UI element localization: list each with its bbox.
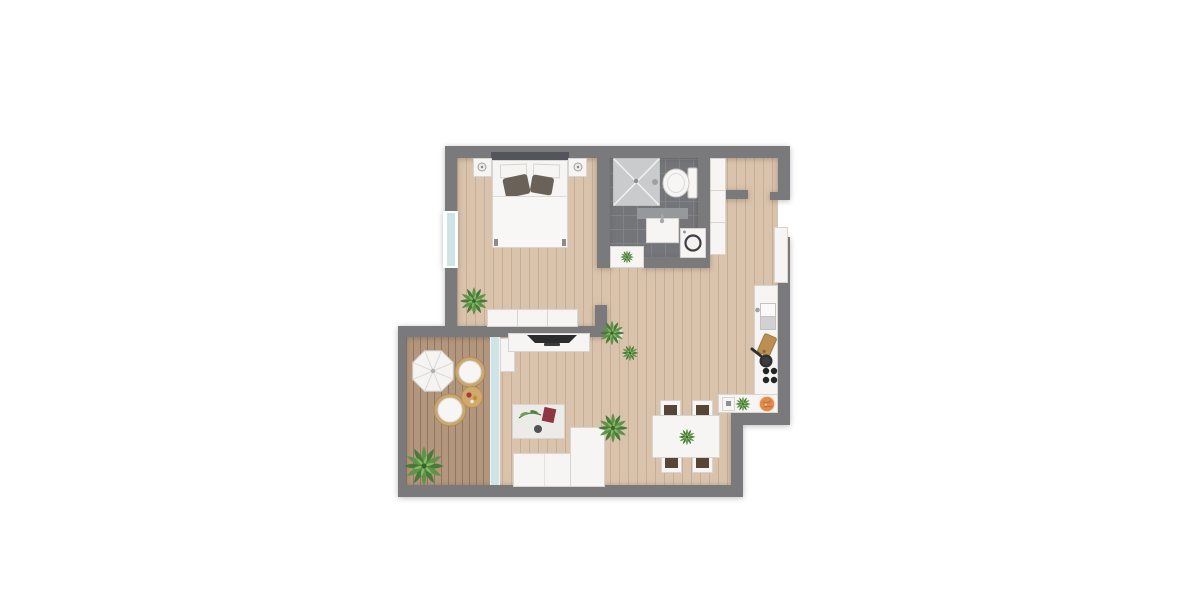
- pillow-dark-right: [530, 174, 555, 196]
- chair-seat: [665, 458, 678, 468]
- sliding-glass-door: [490, 337, 500, 485]
- bed-headboard: [491, 152, 569, 160]
- entrance-door-leaf: [774, 227, 788, 283]
- bathroom-door-mat: [610, 246, 644, 268]
- chair-seat: [696, 458, 709, 468]
- chair-seat: [664, 405, 677, 415]
- coffee-table: [512, 404, 565, 439]
- dining-table: [652, 415, 720, 458]
- dining-chair-bottom-right: [692, 456, 713, 473]
- nightstand-right: [568, 158, 587, 177]
- kitchen-appliance: [722, 397, 735, 411]
- apartment-floorplan: [0, 0, 1200, 600]
- vanity-sink: [646, 218, 679, 243]
- bedroom-dresser: [487, 309, 578, 327]
- entry-wardrobe: [710, 158, 726, 255]
- sofa-chaise: [570, 427, 605, 487]
- tv-sideboard: [508, 333, 590, 352]
- chair-seat: [696, 405, 709, 415]
- bed-duvet: [493, 196, 567, 247]
- nightstand-left: [473, 158, 492, 177]
- washing-machine: [680, 228, 706, 258]
- dining-chair-bottom-left: [661, 456, 682, 473]
- furniture-layer: [0, 0, 1200, 600]
